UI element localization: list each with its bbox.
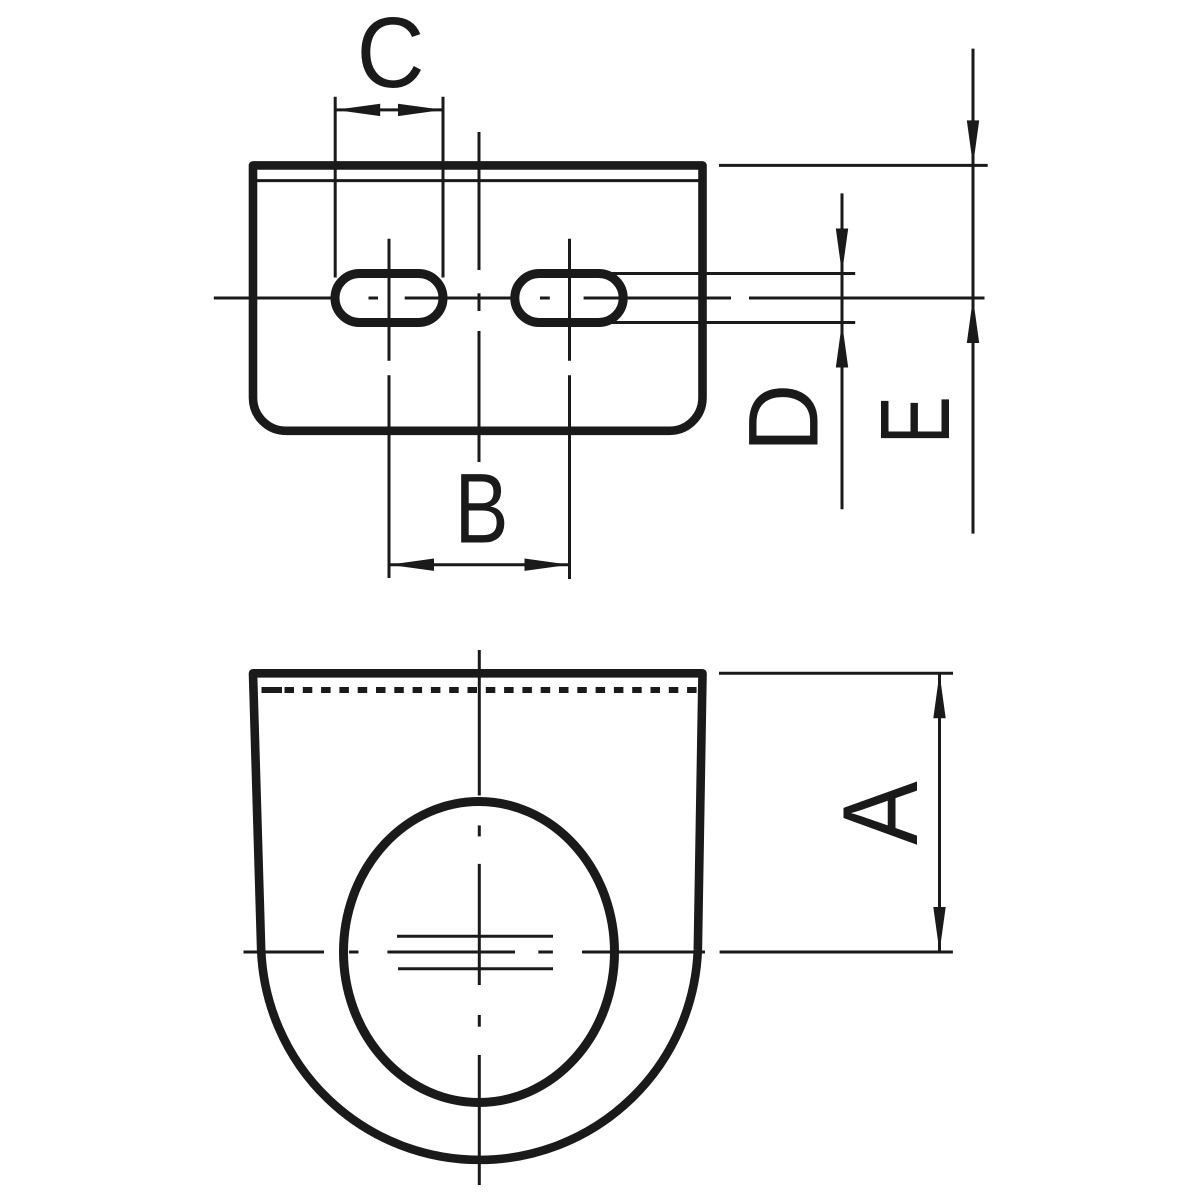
svg-text:B: B xyxy=(455,454,509,565)
svg-text:C: C xyxy=(357,0,425,109)
svg-text:E: E xyxy=(861,396,971,444)
svg-text:A: A xyxy=(821,781,940,845)
svg-text:D: D xyxy=(727,384,839,453)
